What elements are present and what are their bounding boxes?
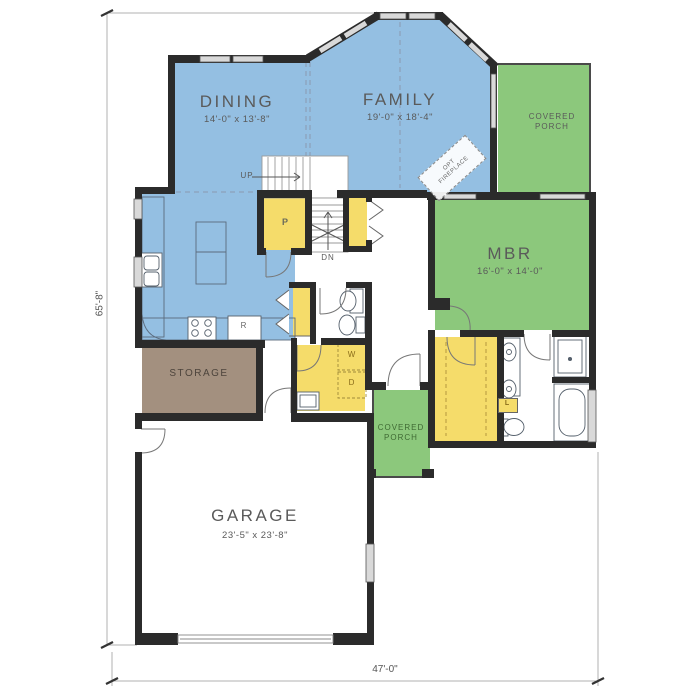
floor-plan: OPT FIREPLACE DINING 14'-0" x 13'-8" FAM… <box>0 0 700 700</box>
half-bath-fixtures <box>339 289 365 335</box>
dryer-label: D <box>338 378 366 387</box>
refrigerator-label: R <box>236 321 252 330</box>
dining-label: DINING <box>157 92 317 112</box>
kitchen-counters <box>142 197 295 340</box>
mbr-dims: 16'-0" x 14'-0" <box>430 266 590 277</box>
dining-dims: 14'-0" x 13'-8" <box>157 114 317 125</box>
mbr-label: MBR <box>430 244 590 264</box>
garage-door <box>178 635 333 643</box>
range <box>188 317 216 340</box>
master-bath-fixtures <box>498 336 590 441</box>
bay-windows <box>320 23 487 60</box>
stairs <box>252 156 348 252</box>
pantry-label: P <box>274 217 296 227</box>
garage-label: GARAGE <box>175 506 335 526</box>
kitchen-sink <box>141 253 162 287</box>
family-dims: 19'-0" x 18'-4" <box>320 112 480 123</box>
garage-dims: 23'-5" x 23'-8" <box>175 530 335 541</box>
stairs-up-label: UP <box>236 171 258 180</box>
overall-width-dimension: 47'-0" <box>345 664 425 675</box>
washer-label: W <box>338 350 366 359</box>
family-label: FAMILY <box>320 90 480 110</box>
covered-porch-lower-label: COVERED PORCH <box>361 423 441 443</box>
storage-label: STORAGE <box>139 368 259 379</box>
stairs-dn-label: DN <box>316 253 340 262</box>
overall-height-dimension: 65'-8" <box>95 274 106 334</box>
covered-porch-upper-label: COVERED PORCH <box>512 112 592 132</box>
linen-label: L <box>498 400 516 407</box>
